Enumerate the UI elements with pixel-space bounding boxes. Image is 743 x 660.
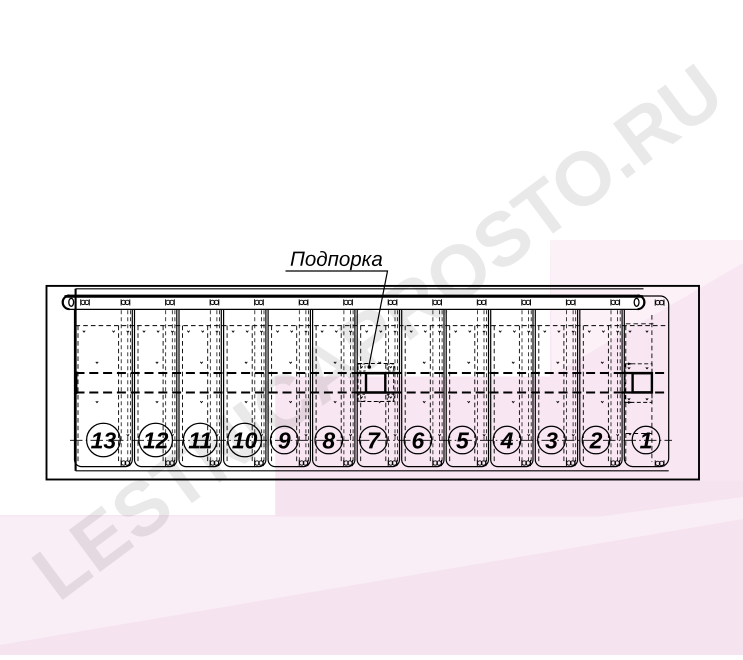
svg-text:2: 2 [589, 427, 603, 453]
svg-text:1: 1 [640, 427, 653, 453]
svg-text:3: 3 [545, 427, 558, 453]
svg-text:7: 7 [367, 427, 381, 453]
svg-text:13: 13 [91, 427, 117, 453]
svg-text:8: 8 [322, 427, 335, 453]
svg-text:9: 9 [278, 427, 291, 453]
svg-text:Подпорка: Подпорка [290, 248, 383, 271]
svg-text:6: 6 [411, 427, 424, 453]
svg-text:5: 5 [456, 427, 470, 453]
svg-text:10: 10 [232, 427, 258, 453]
svg-text:11: 11 [188, 427, 212, 453]
svg-text:12: 12 [143, 427, 169, 453]
svg-text:4: 4 [500, 427, 514, 453]
